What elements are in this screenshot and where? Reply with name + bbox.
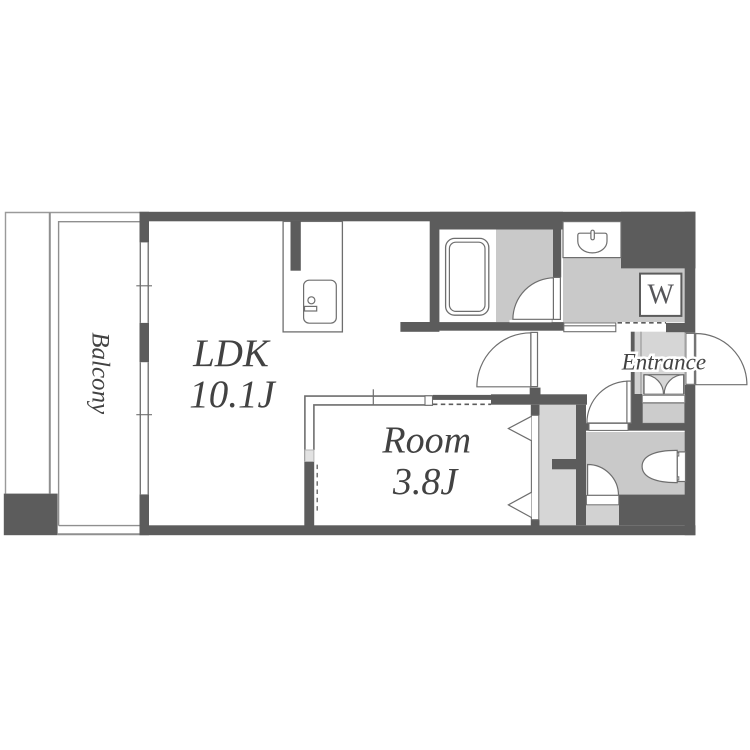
- svg-text:Room: Room: [381, 420, 471, 462]
- svg-text:Balcony: Balcony: [87, 332, 114, 415]
- svg-text:3.8J: 3.8J: [392, 461, 460, 503]
- svg-text:W: W: [647, 280, 674, 311]
- svg-text:10.1J: 10.1J: [189, 373, 276, 416]
- svg-text:LDK: LDK: [192, 332, 271, 375]
- svg-text:Entrance: Entrance: [621, 349, 706, 374]
